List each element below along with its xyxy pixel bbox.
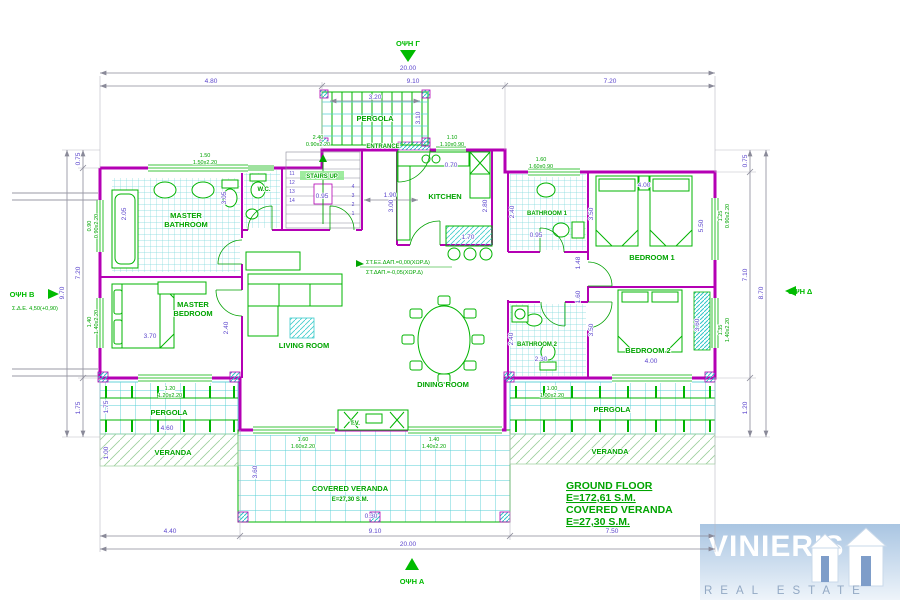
view-marker-left: ΟΨΗ Β bbox=[10, 290, 35, 299]
dim-bath2-w: 2.40 bbox=[508, 332, 515, 345]
dim-kitchen-top: 0.70 bbox=[445, 162, 458, 169]
summary-area: E=172,61 S.M. bbox=[566, 492, 636, 504]
label-bathroom-2: BATHROOM 2 bbox=[517, 342, 558, 348]
summary-veranda: COVERED VERANDA bbox=[566, 504, 673, 516]
window-label: 1.60x0.90 bbox=[529, 164, 553, 170]
window-label: 1.20x2.20 bbox=[158, 393, 182, 399]
view-marker-bottom: ΟΨΗ Α bbox=[400, 577, 425, 586]
label-veranda-right: VERANDA bbox=[591, 447, 629, 456]
window-label: 1.40x2.20 bbox=[94, 310, 100, 334]
dim-left-bottom: 1.75 bbox=[75, 401, 82, 414]
stairs bbox=[286, 152, 360, 228]
level-note-1: ΣΤ.ΕΞ.ΔΑΠ.=0,00(ΧΩΡ.Δ) bbox=[366, 260, 430, 266]
label-entrance: ENTRANCE bbox=[366, 144, 399, 150]
left-level-note: Σ.Δ.Ε. 4,50(+0,90) bbox=[12, 306, 58, 312]
walls bbox=[100, 150, 715, 430]
floor-plan-svg: ΟΨΗ Γ ΟΨΗ Α ΟΨΗ Β ΟΨΗ Δ Σ.Δ.Ε. 4,50(+0,9… bbox=[0, 0, 900, 600]
dim-bed1-w: 4.00 bbox=[638, 182, 651, 189]
view-markers bbox=[48, 50, 796, 570]
pergola-structures bbox=[100, 90, 715, 432]
summary-veranda-area: E=27,30 S.M. bbox=[566, 516, 630, 528]
dim-left-mid: 7.20 bbox=[75, 266, 82, 279]
dim-right-mid: 7.10 bbox=[742, 268, 749, 281]
dim-bed2-w: 4.00 bbox=[645, 358, 658, 365]
window-label: 1.40x2.20 bbox=[422, 444, 446, 450]
label-pergola-top: PERGOLA bbox=[356, 114, 394, 123]
level-note-2: ΣΤ.ΔΑΠ.=-0,05(ΧΩΡ.Δ) bbox=[366, 270, 423, 276]
dim-bath2-b: 2.30 bbox=[535, 356, 548, 363]
dim-top-right: 7.20 bbox=[604, 78, 617, 85]
window-label: 1.50x2.20 bbox=[193, 160, 217, 166]
dim-kitchen-right: 2.80 bbox=[482, 199, 489, 212]
window-label: 0.90x2.20 bbox=[725, 204, 731, 228]
stair-number: 12 bbox=[289, 180, 295, 186]
dim-right-bottom: 1.20 bbox=[742, 401, 749, 414]
dim-corridor-b: 1.60 bbox=[575, 290, 582, 303]
label-tv: T.V. bbox=[350, 421, 360, 427]
label-master-bedroom-2: BEDROOM bbox=[173, 309, 212, 318]
dim-bottom-mid: 9.10 bbox=[369, 528, 382, 535]
summary-title: GROUND FLOOR bbox=[566, 480, 653, 492]
window-label: 1.25 bbox=[718, 211, 724, 222]
view-marker-right: ΟΨΗ Δ bbox=[788, 287, 813, 296]
label-dining-room: DINING ROOM bbox=[417, 380, 469, 389]
window-label: 2.40 bbox=[313, 135, 324, 141]
label-master-bedroom-1: MASTER bbox=[177, 300, 209, 309]
stair-number: 4 bbox=[352, 184, 355, 190]
label-covered-veranda-area: E=27,30 S.M. bbox=[332, 497, 369, 503]
furniture bbox=[112, 152, 710, 430]
window-label: 1.40 bbox=[429, 437, 440, 443]
dim-left-top: 0.75 bbox=[75, 152, 82, 165]
dim-stairs-side: 1.90 bbox=[384, 192, 397, 199]
window-label: 1.60 bbox=[536, 157, 547, 163]
columns bbox=[98, 372, 715, 522]
window-label: 1.60x2.20 bbox=[291, 444, 315, 450]
dim-right-total: 8.70 bbox=[758, 286, 765, 299]
dim-top-total: 20.00 bbox=[400, 65, 417, 72]
dim-bath1-door: 0.95 bbox=[530, 232, 543, 239]
view-marker-top: ΟΨΗ Γ bbox=[396, 39, 420, 48]
window-label: 1.50 bbox=[200, 153, 211, 159]
label-bedroom-1: BEDROOM 1 bbox=[629, 253, 674, 262]
window-label: 1.60 bbox=[298, 437, 309, 443]
label-master-bathroom-2: BATHROOM bbox=[164, 220, 208, 229]
dim-masterbath-h: 3.05 bbox=[221, 191, 228, 204]
label-veranda-left: VERANDA bbox=[154, 448, 192, 457]
window-label: 1.10x0.90 bbox=[440, 142, 464, 148]
dim-pergola-left-d: 1.75 bbox=[103, 400, 110, 413]
vinieris-logo: VINIERIS REAL ESTATE bbox=[700, 524, 900, 600]
dim-pergola-left-s: 1.00 bbox=[103, 446, 110, 459]
stair-number: 3 bbox=[352, 193, 355, 199]
label-pergola-left: PERGOLA bbox=[150, 408, 188, 417]
window-label: 1.00 bbox=[547, 386, 558, 392]
dim-kitchen-island: 1.70 bbox=[462, 234, 475, 241]
dim-pergola-left-w: 4.60 bbox=[161, 425, 174, 432]
stair-number: 13 bbox=[289, 189, 295, 195]
label-bathroom-1: BATHROOM 1 bbox=[527, 211, 568, 217]
labels: ΟΨΗ Γ ΟΨΗ Α ΟΨΗ Β ΟΨΗ Δ Σ.Δ.Ε. 4,50(+0,9… bbox=[10, 39, 813, 586]
dim-bath1-h: 3.50 bbox=[588, 207, 595, 220]
label-wc: W.C. bbox=[258, 187, 271, 193]
dim-pergola-width: 3.20 bbox=[369, 94, 382, 101]
dim-pergola-depth: 3.10 bbox=[415, 111, 422, 124]
dim-masterbed-w: 3.70 bbox=[144, 333, 157, 340]
window-label: 1.40x2.20 bbox=[725, 318, 731, 342]
dim-bottom-right: 7.50 bbox=[606, 528, 619, 535]
logo-houses-icon bbox=[808, 526, 898, 588]
dim-bed2-left: 3.50 bbox=[588, 323, 595, 336]
window-label: 0.90x2.20 bbox=[94, 214, 100, 238]
dim-left-total: 9.70 bbox=[59, 286, 66, 299]
dim-masterbed-side: 2.40 bbox=[223, 321, 230, 334]
dim-top-left: 4.80 bbox=[205, 78, 218, 85]
dim-veranda-depth: 3.60 bbox=[252, 465, 259, 478]
label-pergola-right: PERGOLA bbox=[593, 405, 631, 414]
logo-tagline: REAL ESTATE bbox=[704, 585, 898, 597]
window-label: 1.35 bbox=[718, 325, 724, 336]
label-master-bathroom-1: MASTER bbox=[170, 211, 202, 220]
window-label: 0.90 bbox=[87, 221, 93, 232]
window-label: 0.90x2.20 bbox=[306, 142, 330, 148]
floorplan-canvas: VINIERIS REAL ESTATE bbox=[0, 0, 900, 600]
label-covered-veranda: COVERED VERANDA bbox=[312, 484, 389, 493]
label-bedroom-2: BEDROOM 2 bbox=[625, 346, 670, 355]
dim-stairs-mid: 0.95 bbox=[316, 193, 329, 200]
dim-right-top: 0.75 bbox=[742, 154, 749, 167]
dim-bed1-h: 5.50 bbox=[698, 219, 705, 232]
dim-top-mid: 9.10 bbox=[407, 78, 420, 85]
tile-areas bbox=[100, 142, 715, 522]
dimension-lines bbox=[12, 73, 770, 552]
window-label: 1.10 bbox=[447, 135, 458, 141]
stair-number: 11 bbox=[289, 171, 294, 177]
dim-veranda-step: 0.30 bbox=[365, 513, 378, 520]
dim-corridor-a: 1.48 bbox=[575, 256, 582, 269]
doors bbox=[216, 150, 612, 328]
window-label: 1.20 bbox=[165, 386, 176, 392]
window-label: 1.40 bbox=[87, 317, 93, 328]
dim-bed2-h: 3.60 bbox=[694, 318, 701, 331]
dim-masterbath-w: 2.05 bbox=[121, 207, 128, 220]
label-kitchen: KITCHEN bbox=[428, 192, 461, 201]
stair-number: 2 bbox=[352, 202, 355, 208]
stair-number: 1 bbox=[352, 211, 355, 217]
windows bbox=[95, 145, 720, 435]
label-stairs: STAIRS UP bbox=[306, 174, 338, 180]
dim-bottom-left: 4.40 bbox=[164, 528, 177, 535]
dim-bath1-w: 2.40 bbox=[509, 205, 516, 218]
label-living-room: LIVING ROOM bbox=[279, 341, 329, 350]
dim-kitchen-h: 3.00 bbox=[388, 199, 395, 212]
stair-number: 14 bbox=[289, 198, 295, 204]
window-label: 1.00x2.20 bbox=[540, 393, 564, 399]
dim-bottom-total: 20.00 bbox=[400, 541, 417, 548]
